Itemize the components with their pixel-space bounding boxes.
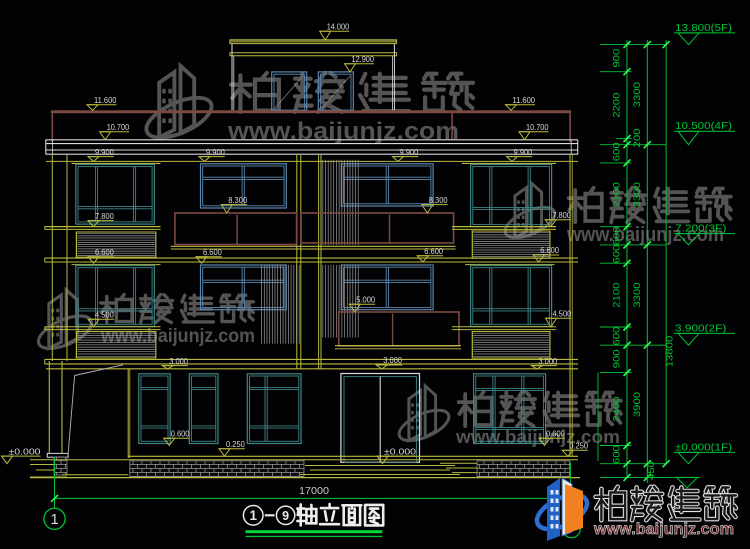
svg-text:0.600: 0.600 [171, 429, 190, 439]
svg-text:±0.000: ±0.000 [9, 446, 41, 456]
svg-text:3300: 3300 [632, 182, 643, 207]
svg-text:600: 600 [612, 226, 623, 245]
svg-text:3.000: 3.000 [538, 356, 557, 366]
svg-text:8.300: 8.300 [429, 195, 448, 205]
svg-text:10.500(4F): 10.500(4F) [675, 120, 732, 132]
svg-text:0.250: 0.250 [569, 441, 588, 451]
svg-text:600: 600 [612, 445, 623, 464]
svg-text:0.600: 0.600 [546, 429, 565, 439]
svg-text:10.700: 10.700 [107, 122, 130, 132]
svg-text:11.600: 11.600 [94, 95, 117, 105]
svg-text:±0.000(1F): ±0.000(1F) [675, 441, 732, 453]
svg-text:6.600: 6.600 [540, 245, 559, 255]
svg-text:2400: 2400 [612, 396, 623, 421]
svg-text:1: 1 [249, 508, 257, 523]
svg-text:7.200(3F): 7.200(3F) [675, 223, 726, 235]
svg-text:4.500: 4.500 [553, 309, 572, 319]
svg-text:200: 200 [632, 129, 643, 148]
svg-text:14.000: 14.000 [327, 22, 350, 32]
svg-text:2100: 2100 [612, 282, 623, 307]
svg-text:3300: 3300 [632, 82, 643, 107]
svg-text:3900: 3900 [632, 392, 643, 417]
svg-text:2100: 2100 [612, 182, 623, 207]
svg-text:3.900(2F): 3.900(2F) [675, 322, 726, 334]
svg-text:17000: 17000 [299, 485, 329, 497]
svg-text:12.900: 12.900 [352, 54, 375, 64]
svg-text:3.000: 3.000 [383, 355, 402, 365]
svg-text:www.baijunjz.com: www.baijunjz.com [227, 118, 459, 145]
svg-text:9.900: 9.900 [514, 147, 533, 157]
svg-text:9.900: 9.900 [206, 147, 225, 157]
svg-text:7.800: 7.800 [552, 210, 571, 220]
svg-text:3300: 3300 [632, 283, 643, 308]
svg-text:600: 600 [612, 142, 623, 161]
svg-text:±0.000: ±0.000 [384, 446, 416, 456]
svg-text:11.600: 11.600 [513, 95, 536, 105]
svg-text:4.500: 4.500 [95, 310, 114, 320]
svg-text:10.700: 10.700 [526, 122, 549, 132]
svg-text:1: 1 [50, 511, 58, 528]
svg-text:13.800(5F): 13.800(5F) [675, 22, 732, 34]
svg-text:9.900: 9.900 [400, 147, 419, 157]
svg-text:6.600: 6.600 [95, 247, 114, 257]
svg-text:600: 600 [612, 327, 623, 346]
svg-text:2200: 2200 [612, 93, 623, 118]
svg-text:3.000: 3.000 [169, 356, 188, 366]
svg-text:900: 900 [612, 49, 623, 68]
svg-text:8.300: 8.300 [228, 195, 247, 205]
svg-text:6.600: 6.600 [424, 246, 443, 256]
svg-text:9: 9 [282, 509, 289, 523]
svg-text:600: 600 [612, 245, 623, 264]
svg-text:7.800: 7.800 [95, 211, 114, 221]
svg-text:5.000: 5.000 [356, 295, 375, 305]
svg-text:900: 900 [612, 349, 623, 368]
svg-text:www.baijunjz.com: www.baijunjz.com [593, 521, 734, 538]
svg-text:9.900: 9.900 [95, 147, 114, 157]
svg-text:0.250: 0.250 [226, 439, 245, 449]
svg-text:6.600: 6.600 [203, 247, 222, 257]
svg-text:13800: 13800 [665, 336, 676, 368]
